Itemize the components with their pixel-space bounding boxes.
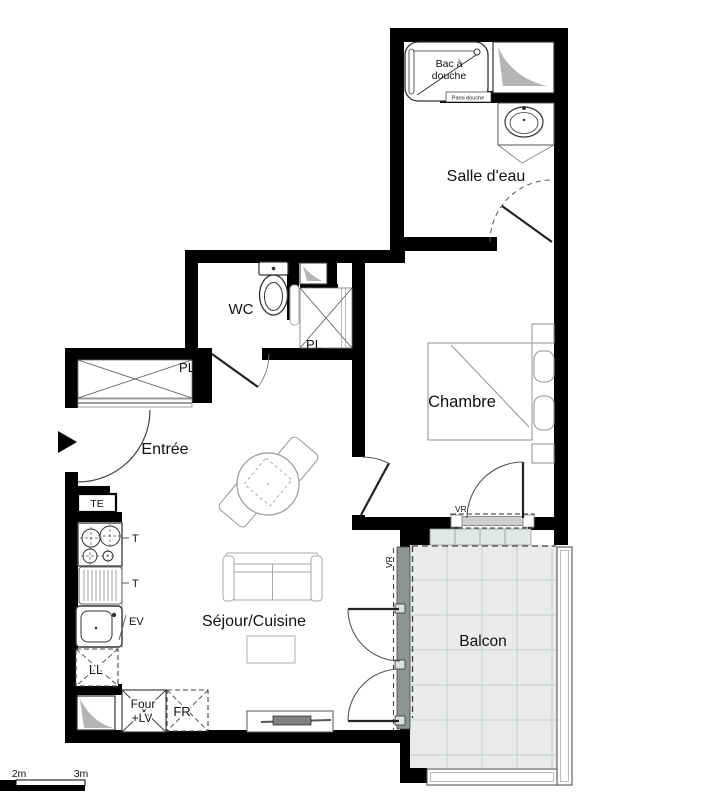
closet-entree <box>78 360 192 407</box>
nightstand <box>532 444 554 463</box>
balcony <box>410 545 572 785</box>
sofa <box>223 553 322 601</box>
french-door-leaves <box>348 609 400 721</box>
counter-label-t1: T <box>132 533 139 545</box>
toilet <box>259 262 288 315</box>
wc-door-leaf <box>290 285 299 325</box>
balcony-tiles <box>410 545 557 768</box>
fridge-label: FR <box>173 704 190 719</box>
entrance-door <box>58 410 150 482</box>
oven-label-line2: +LV <box>132 711 153 725</box>
shower-label-line1: Bac à <box>436 58 463 70</box>
dining-set <box>217 435 320 529</box>
pillow <box>534 396 554 430</box>
room-label-entree: Entrée <box>141 441 188 458</box>
room-label-chambre: Chambre <box>428 393 496 411</box>
kitchen-sink-label: EV <box>129 616 144 628</box>
shutter-label-chambre: VR <box>455 504 467 514</box>
bathroom-door <box>490 180 552 242</box>
shower-screen-label: Paroi douche <box>452 96 484 102</box>
room-label-wc: WC <box>229 301 254 318</box>
scale-label-3m: 3m <box>74 768 89 780</box>
tv <box>273 716 311 725</box>
french-door <box>348 547 410 730</box>
floor-plan: Salle d'eau WC Chambre Entrée Séjour/Cui… <box>0 0 703 800</box>
tv-stand <box>247 711 333 732</box>
bedroom-balcony-door <box>430 462 534 545</box>
room-label-balcon: Balcon <box>459 633 506 650</box>
floor-plan-drawing: Salle d'eau WC Chambre Entrée Séjour/Cui… <box>0 0 703 800</box>
electrical-panel-label: TE <box>90 498 103 510</box>
nightstand <box>532 324 554 343</box>
closet-label-chambre: PL <box>306 337 322 352</box>
bedroom-door <box>361 457 390 515</box>
room-label-sejour-cuisine: Séjour/Cuisine <box>202 613 306 630</box>
shutter-label-sejour: VR <box>384 556 394 568</box>
closet-label-entree: PL <box>179 360 195 375</box>
pillow <box>534 351 554 382</box>
shower-label-line2: douche <box>432 70 467 82</box>
drainer <box>79 567 122 604</box>
technical-duct-closet <box>300 263 327 284</box>
technical-duct-kitchen <box>77 696 115 730</box>
coffee-table <box>247 636 295 663</box>
room-label-salle-deau: Salle d'eau <box>447 168 526 185</box>
counter-label-t2: T <box>132 578 139 590</box>
wc-door <box>212 354 269 387</box>
scale-bar <box>0 780 85 791</box>
washing-machine-label: LL <box>89 663 103 677</box>
scale-label-2m: 2m <box>12 768 27 780</box>
kitchen-sink <box>76 606 126 647</box>
cooktop <box>78 523 122 566</box>
oven-label-line1: Four <box>131 697 156 711</box>
technical-duct-top <box>493 42 554 93</box>
washbasin <box>498 103 554 163</box>
entrance-arrow <box>58 431 77 453</box>
